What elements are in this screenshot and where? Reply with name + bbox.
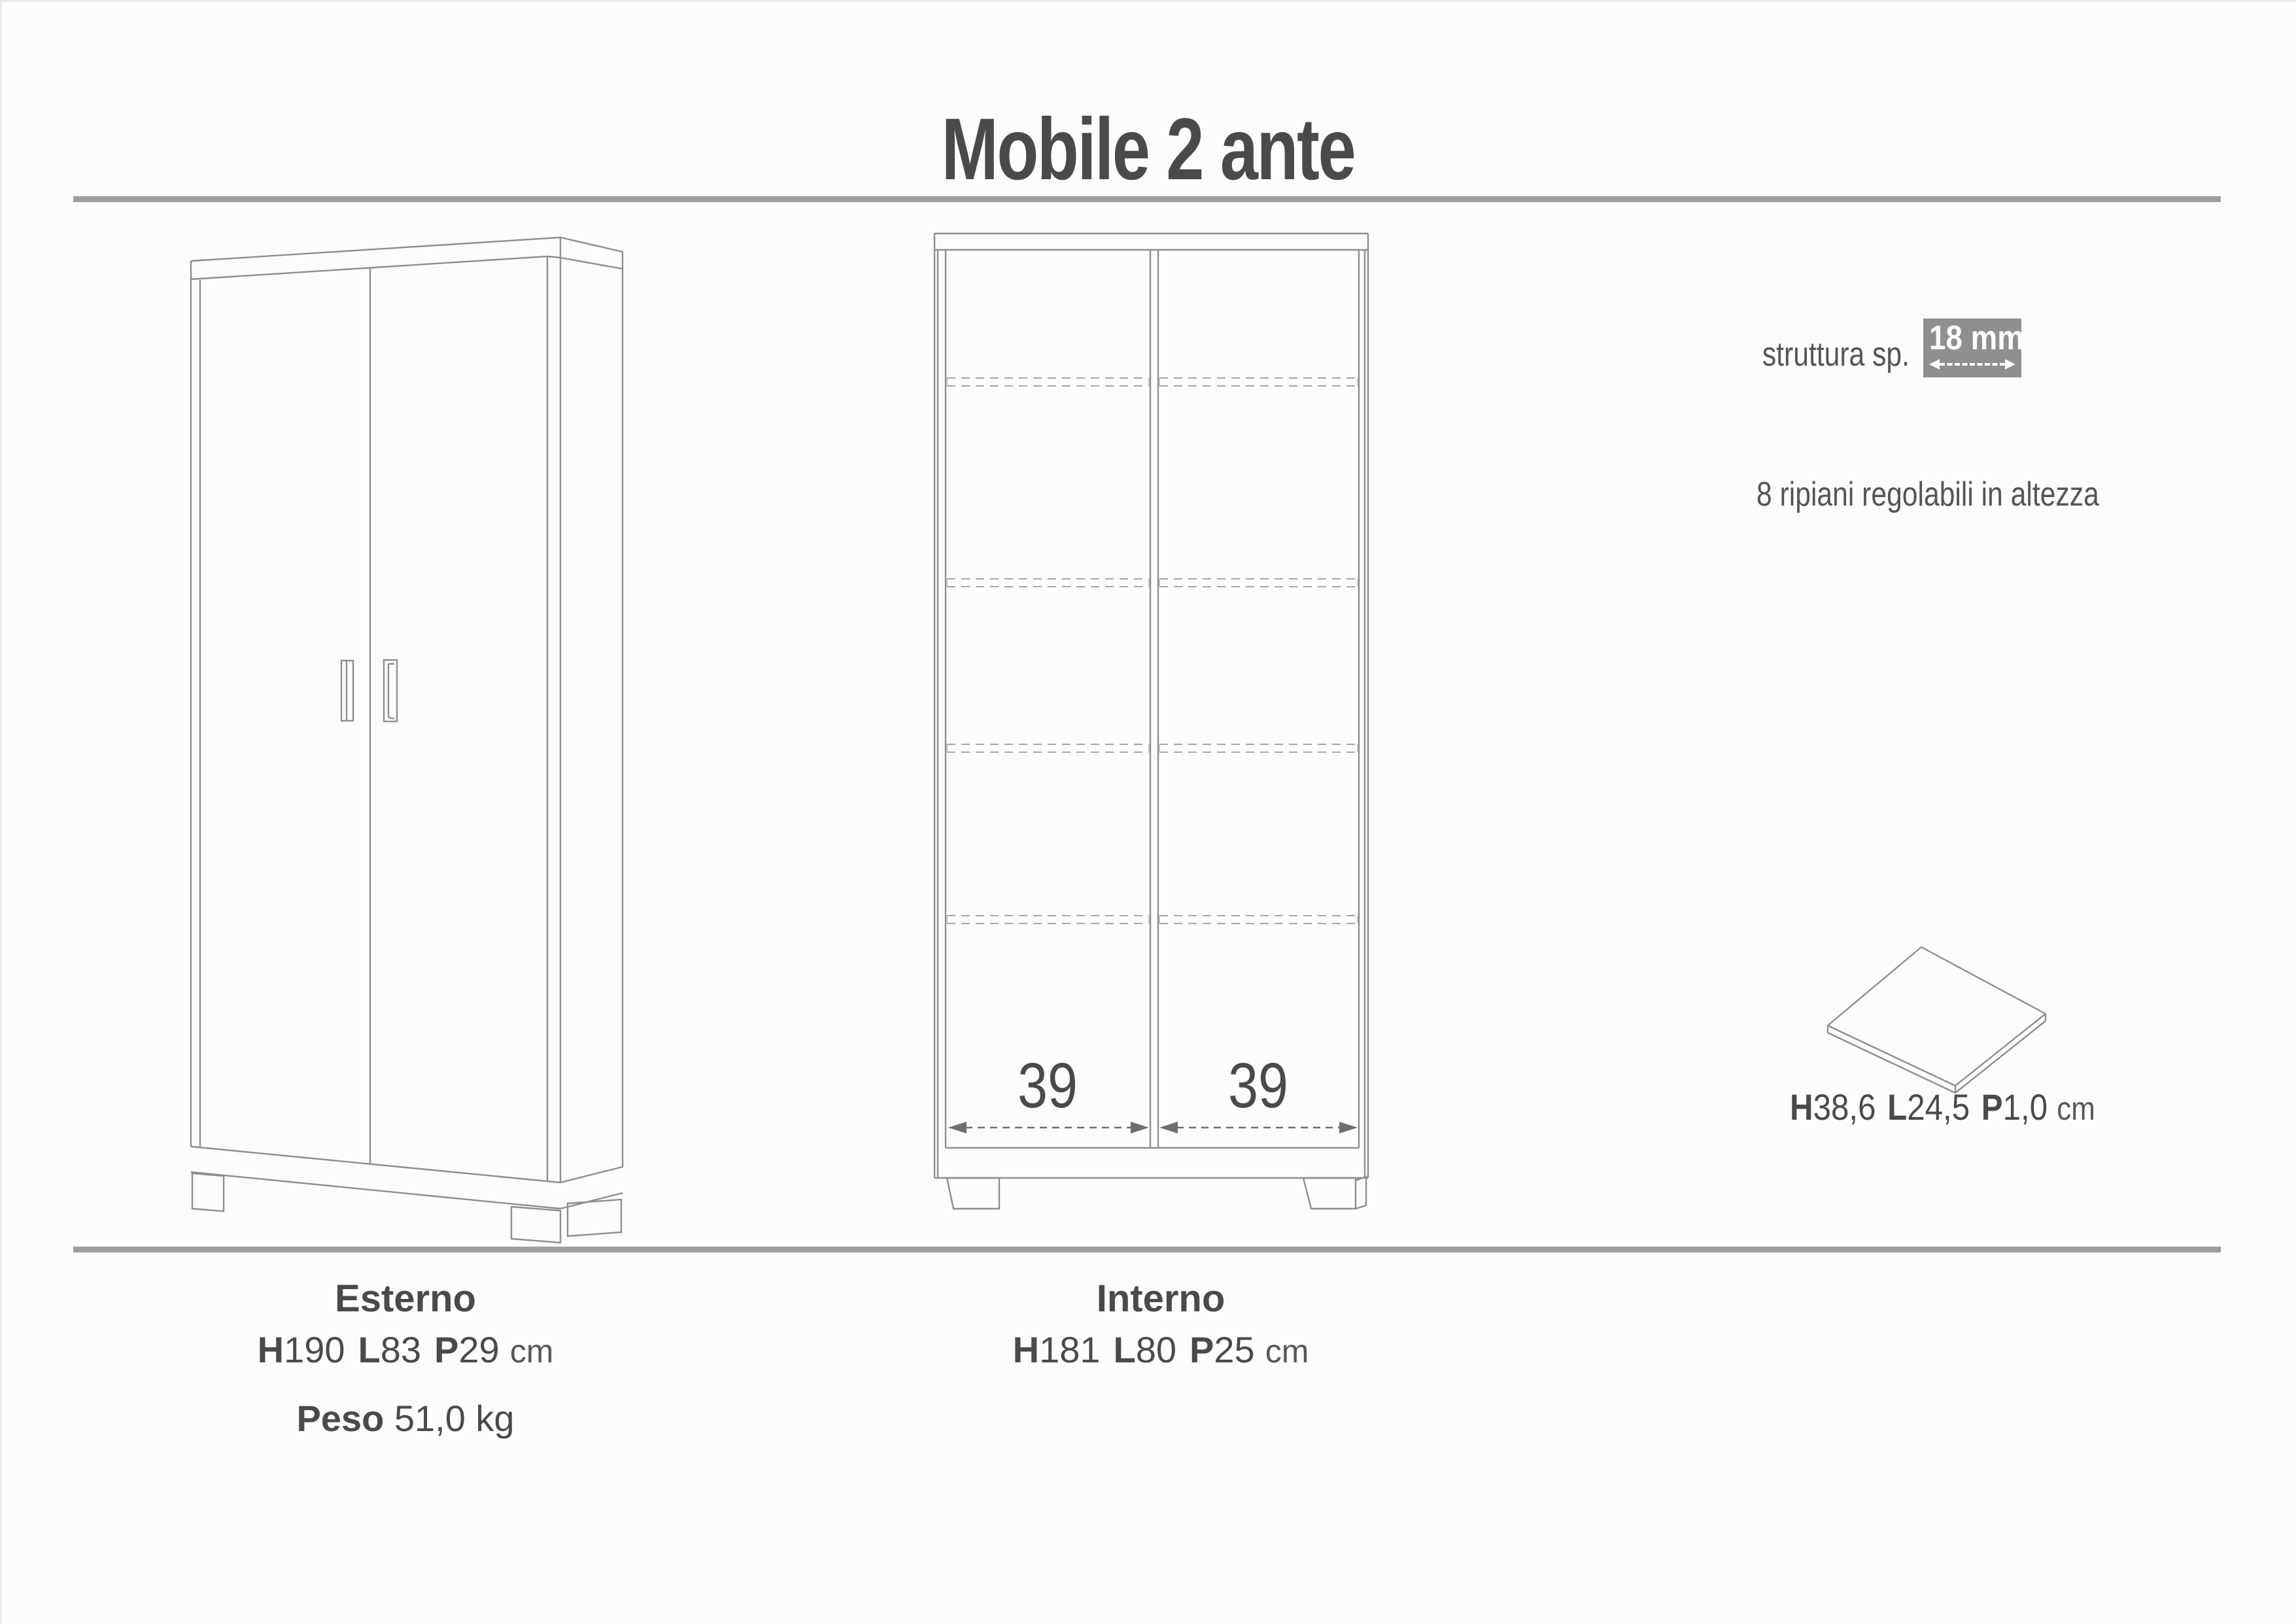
adjustable-shelves-note: 8 ripiani regolabili in altezza	[1756, 475, 2099, 514]
thickness-arrow-icon	[1929, 358, 2015, 370]
front-view-legs	[947, 1177, 1366, 1209]
cabinet-front-interior-drawing: 39 39	[934, 232, 1369, 1213]
structure-thickness-badge: 18 mm	[1923, 319, 2021, 377]
shelf-dimensions: H38,6L24,5P1,0cm	[1790, 1086, 2095, 1128]
width-arrow-left-icon	[948, 1122, 1149, 1133]
structure-thickness-value: 18 mm	[1929, 320, 2015, 357]
spec-sheet-page: { "title": "Mobile 2 ante", "right_panel…	[0, 0, 2296, 1624]
page-title: Mobile 2 ante	[252, 99, 2044, 199]
weight-row: Peso 51,0 kg	[147, 1397, 664, 1440]
interno-dimensions: H181L80P25cm	[902, 1328, 1419, 1371]
front-left-leg	[192, 1173, 224, 1211]
width-dimension-right: 39	[1159, 1051, 1358, 1133]
cabinet-perspective-drawing	[170, 222, 680, 1262]
structure-thickness-label: struttura sp.	[1695, 335, 1910, 374]
width-value-left: 39	[1018, 1051, 1078, 1122]
width-arrow-right-icon	[1159, 1122, 1358, 1133]
door-handle-right-icon	[384, 660, 397, 721]
interno-section: Interno H181L80P25cm	[902, 1277, 1419, 1371]
width-value-right: 39	[1228, 1051, 1288, 1122]
front-right-leg	[511, 1207, 560, 1243]
esterno-section: Esterno H190L83P29cm Peso 51,0 kg	[147, 1277, 664, 1440]
shelf-end-ticks	[947, 378, 1358, 924]
width-dimension-left: 39	[948, 1051, 1149, 1133]
adjustable-shelf-lines	[947, 378, 1358, 924]
door-handle-left-icon	[341, 661, 353, 721]
interno-heading: Interno	[902, 1277, 1419, 1321]
esterno-heading: Esterno	[147, 1277, 664, 1321]
shelf-panel-drawing	[1811, 929, 2066, 1112]
header-divider	[73, 196, 2221, 202]
esterno-dimensions: H190L83P29cm	[147, 1328, 664, 1371]
